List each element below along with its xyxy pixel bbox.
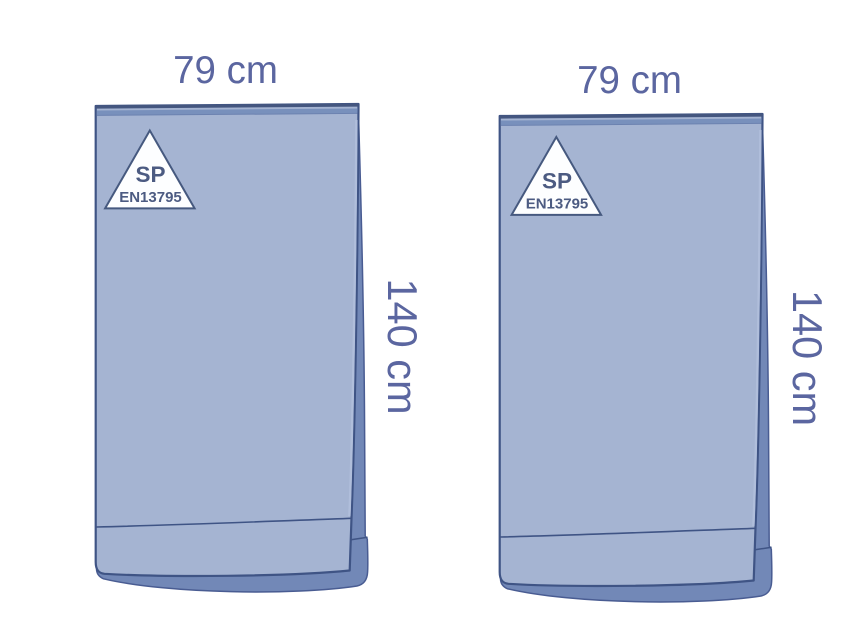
svg-text:140 cm: 140 cm xyxy=(784,290,831,426)
svg-text:SP: SP xyxy=(135,162,165,187)
svg-text:79 cm: 79 cm xyxy=(577,59,682,102)
svg-text:140 cm: 140 cm xyxy=(379,278,426,414)
svg-text:SP: SP xyxy=(542,169,572,194)
svg-text:79 cm: 79 cm xyxy=(173,49,278,92)
svg-text:EN13795: EN13795 xyxy=(526,196,589,213)
svg-text:EN13795: EN13795 xyxy=(119,189,182,206)
